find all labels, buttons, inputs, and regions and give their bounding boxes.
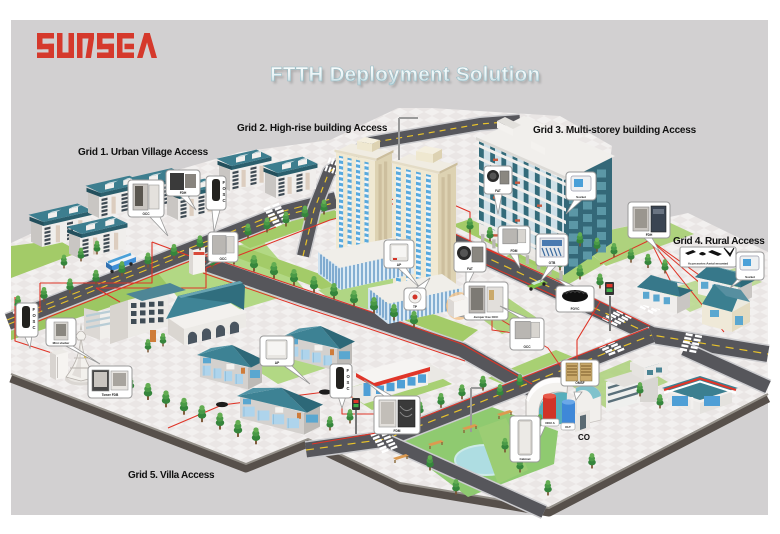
svg-text:ONU A: ONU A (545, 421, 555, 425)
svg-text:S: S (223, 192, 226, 197)
svg-text:OCC: OCC (219, 257, 227, 261)
svg-text:Grid 2. High-rise building Acc: Grid 2. High-rise building Access (237, 123, 388, 134)
svg-text:FOYC: FOYC (571, 307, 581, 311)
svg-text:F: F (33, 307, 36, 312)
svg-text:Grid 4. Rural Access: Grid 4. Rural Access (673, 236, 765, 247)
svg-text:C: C (33, 325, 36, 330)
svg-text:Accessories Aerial mounted: Accessories Aerial mounted (688, 262, 728, 266)
svg-text:Jumper free OCC: Jumper free OCC (474, 315, 500, 319)
svg-text:OLT: OLT (565, 425, 571, 429)
svg-text:F: F (223, 180, 226, 185)
svg-text:Socket: Socket (576, 195, 586, 199)
svg-text:C: C (223, 198, 226, 203)
svg-text:OCC: OCC (142, 212, 150, 216)
svg-text:Socket: Socket (745, 275, 755, 279)
svg-text:Grid 5. Villa Access: Grid 5. Villa Access (128, 470, 215, 481)
svg-text:FDM: FDM (511, 249, 518, 253)
svg-text:C: C (347, 386, 350, 391)
svg-text:S: S (33, 319, 36, 324)
svg-text:CO: CO (578, 433, 590, 442)
svg-text:Cabinet: Cabinet (519, 457, 530, 461)
svg-text:Tower FDB: Tower FDB (102, 393, 119, 397)
svg-text:FDH: FDH (646, 233, 653, 237)
svg-text:FDH: FDH (180, 191, 187, 195)
svg-text:FTTH Deployment Solution: FTTH Deployment Solution (270, 63, 540, 86)
svg-text:Mini shelter: Mini shelter (53, 341, 71, 345)
svg-text:Grid 1. Urban Village Access: Grid 1. Urban Village Access (78, 147, 209, 158)
svg-text:OTB: OTB (549, 261, 556, 265)
svg-text:FAT: FAT (495, 189, 501, 193)
svg-text:FAT: FAT (467, 267, 473, 271)
svg-text:FDM: FDM (394, 429, 401, 433)
svg-text:OMSF: OMSF (575, 381, 584, 385)
svg-text:F: F (347, 368, 350, 373)
svg-text:S: S (347, 380, 350, 385)
svg-text:Grid 3. Multi-storey building: Grid 3. Multi-storey building Access (533, 125, 697, 136)
svg-text:OCC: OCC (523, 345, 531, 349)
